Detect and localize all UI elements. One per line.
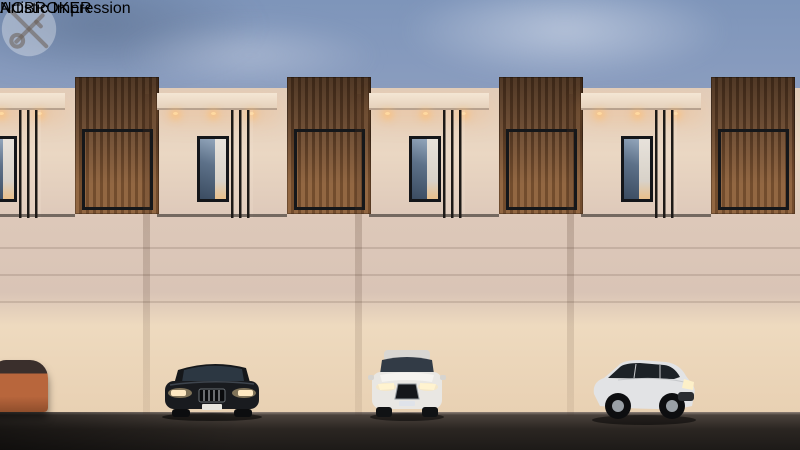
vertical-slat-screen — [655, 110, 677, 218]
balcony-canopy-slab — [157, 93, 277, 110]
upper-floor-window — [0, 136, 17, 202]
floor-slab-line — [581, 214, 711, 217]
tree — [724, 222, 800, 428]
lit-balcony-opening — [718, 129, 789, 210]
balcony-canopy-slab — [369, 93, 489, 110]
window-curtain — [639, 139, 650, 199]
upper-floor-window — [409, 136, 441, 202]
flower-bush — [36, 364, 168, 422]
floor-slab-line — [369, 214, 499, 217]
window-curtain — [215, 139, 226, 199]
white-luxury-sedan — [368, 348, 446, 422]
villa-separation-shadow — [355, 94, 362, 416]
canopy-downlight — [211, 112, 216, 115]
artistic-impression-caption: Artistic Impression — [0, 0, 131, 18]
window-curtain — [3, 139, 14, 199]
villa-row-render: NOBROKER Artistic Impression — [0, 0, 800, 450]
vertical-slat-screen — [443, 110, 465, 218]
floor-slab-line — [157, 214, 287, 217]
upper-floor-window — [621, 136, 653, 202]
tree — [516, 220, 668, 422]
canopy-downlight — [385, 112, 390, 115]
garden-lamp-light — [91, 244, 103, 253]
canopy-downlight — [0, 112, 4, 115]
balcony-canopy-slab — [581, 93, 701, 110]
floor-slab-line — [0, 214, 75, 217]
tree — [160, 224, 312, 422]
canopy-downlight — [173, 112, 178, 115]
canopy-downlight — [423, 112, 428, 115]
vertical-slat-screen — [19, 110, 41, 218]
upper-floor-window — [197, 136, 229, 202]
canopy-downlight — [635, 112, 640, 115]
wood-slat-balcony-box — [711, 77, 795, 214]
canopy-downlight — [597, 112, 602, 115]
balcony-canopy-slab — [0, 93, 65, 110]
window-curtain — [427, 139, 438, 199]
vertical-slat-screen — [231, 110, 253, 218]
